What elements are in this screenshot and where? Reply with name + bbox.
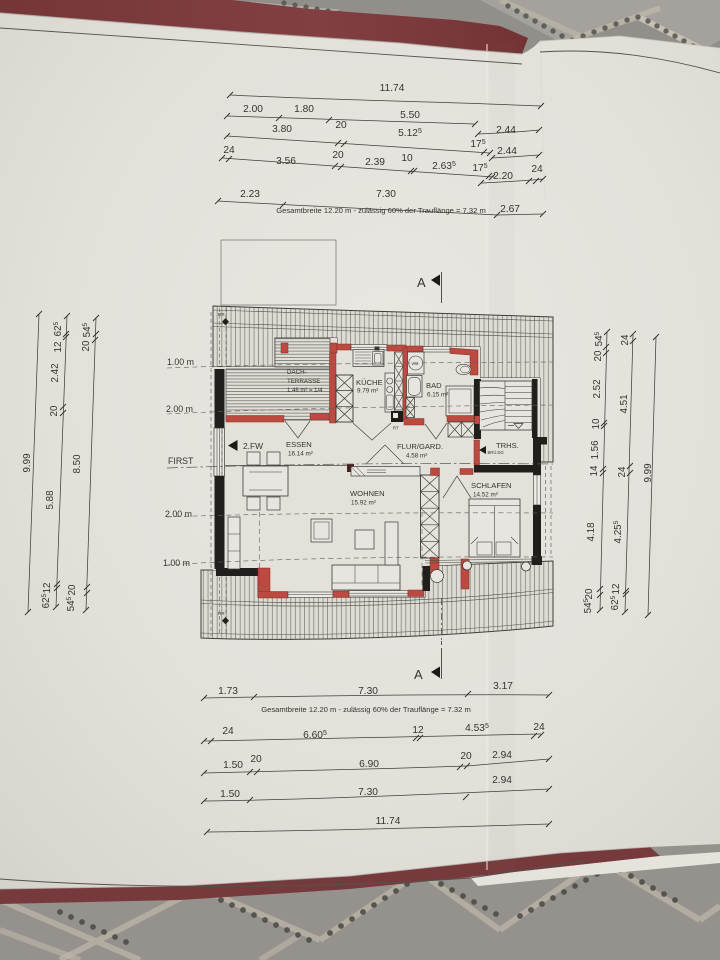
svg-text:2.44: 2.44 [497,146,517,157]
svg-text:10: 10 [401,153,413,164]
svg-text:ESSEN: ESSEN [286,440,312,449]
svg-text:3.80: 3.80 [272,124,292,135]
svg-text:2.42: 2.42 [50,363,61,382]
svg-text:20: 20 [593,350,604,361]
svg-text:20: 20 [584,588,595,599]
svg-text:A: A [414,667,423,682]
svg-text:WOHNEN: WOHNEN [350,489,385,498]
svg-text:5.50: 5.50 [400,110,420,121]
svg-text:2.67: 2.67 [500,204,520,215]
svg-text:20: 20 [81,340,92,351]
svg-text:TERRASSE: TERRASSE [287,378,320,385]
svg-text:RT: RT [393,426,399,431]
svg-text:TRHS.: TRHS. [496,441,519,450]
svg-text:24: 24 [533,722,545,733]
svg-text:2.20: 2.20 [493,171,513,182]
svg-text:14.52 m²: 14.52 m² [473,492,498,499]
svg-text:2.FW: 2.FW [243,441,263,451]
svg-text:11.74: 11.74 [376,816,401,827]
svg-text:2.44: 2.44 [496,125,516,136]
svg-text:1.46 m² = 1/4: 1.46 m² = 1/4 [287,388,323,394]
svg-text:4.51: 4.51 [619,394,630,413]
svg-text:20: 20 [460,751,472,762]
svg-text:FLUR/GARD.: FLUR/GARD. [397,442,443,451]
svg-text:2.23: 2.23 [240,189,260,200]
svg-text:Gesamtbreite 12.20 m - zulässi: Gesamtbreite 12.20 m - zulässig 60% der … [261,705,471,714]
svg-text:20: 20 [332,150,344,161]
svg-text:9.99: 9.99 [22,453,33,472]
svg-text:15.92 m²: 15.92 m² [351,500,376,507]
svg-text:6.15 m²: 6.15 m² [427,392,448,399]
svg-text:BRÜ.DG: BRÜ.DG [488,450,504,455]
svg-text:2.94: 2.94 [492,775,512,786]
svg-text:7.30: 7.30 [358,686,378,697]
svg-text:2.52: 2.52 [592,379,603,398]
svg-text:20: 20 [67,584,78,595]
svg-text:12: 12 [412,725,424,736]
svg-text:RR: RR [218,611,225,616]
svg-text:1.00 m: 1.00 m [163,558,190,568]
svg-text:2.00 m: 2.00 m [165,509,192,519]
svg-text:12: 12 [611,584,622,595]
svg-text:1.50: 1.50 [220,789,240,800]
svg-text:FIRST: FIRST [168,456,194,466]
svg-text:12: 12 [42,583,53,594]
svg-text:WM: WM [412,362,419,366]
svg-text:DACH-: DACH- [287,369,307,376]
svg-text:1.56: 1.56 [590,440,601,460]
svg-text:9.79 m²: 9.79 m² [357,388,378,395]
svg-text:KÜCHE: KÜCHE [356,378,383,387]
svg-text:7.30: 7.30 [376,189,396,200]
svg-text:24: 24 [620,334,631,345]
svg-text:8.50: 8.50 [72,454,83,474]
svg-text:3.17: 3.17 [493,681,513,692]
svg-text:BAD: BAD [426,381,442,390]
svg-text:1.50: 1.50 [223,760,243,771]
svg-text:20: 20 [335,120,347,131]
svg-text:20: 20 [250,754,262,765]
svg-text:2.94: 2.94 [492,750,512,761]
svg-text:20: 20 [49,405,60,416]
svg-text:11.74: 11.74 [380,83,405,94]
svg-text:A: A [417,275,426,290]
svg-text:1.00 m: 1.00 m [167,357,194,367]
svg-text:1.80: 1.80 [294,104,314,115]
svg-text:24: 24 [531,164,543,175]
svg-text:10: 10 [591,418,602,429]
svg-text:5.88: 5.88 [45,490,56,510]
svg-text:24: 24 [222,726,234,737]
svg-text:Gesamtbreite 12.20 m - zulässi: Gesamtbreite 12.20 m - zulässig 60% der … [276,206,486,215]
svg-text:4.58 m²: 4.58 m² [406,453,427,460]
svg-text:6.90: 6.90 [359,759,379,770]
svg-text:16.14 m²: 16.14 m² [288,451,313,458]
svg-text:7.30: 7.30 [358,787,378,798]
svg-text:SCHLAFEN: SCHLAFEN [471,481,512,490]
svg-text:3.56: 3.56 [276,156,296,167]
svg-text:RR: RR [218,312,225,317]
svg-text:24: 24 [223,145,235,156]
svg-text:2.39: 2.39 [365,157,385,168]
svg-text:4.18: 4.18 [586,522,597,542]
svg-text:12: 12 [53,342,64,353]
svg-text:1.73: 1.73 [218,686,238,697]
svg-text:24: 24 [617,466,628,477]
svg-text:9.99: 9.99 [643,463,654,482]
svg-text:14: 14 [589,465,600,476]
svg-text:2.00: 2.00 [243,104,263,115]
svg-text:2.00 m: 2.00 m [166,404,193,414]
